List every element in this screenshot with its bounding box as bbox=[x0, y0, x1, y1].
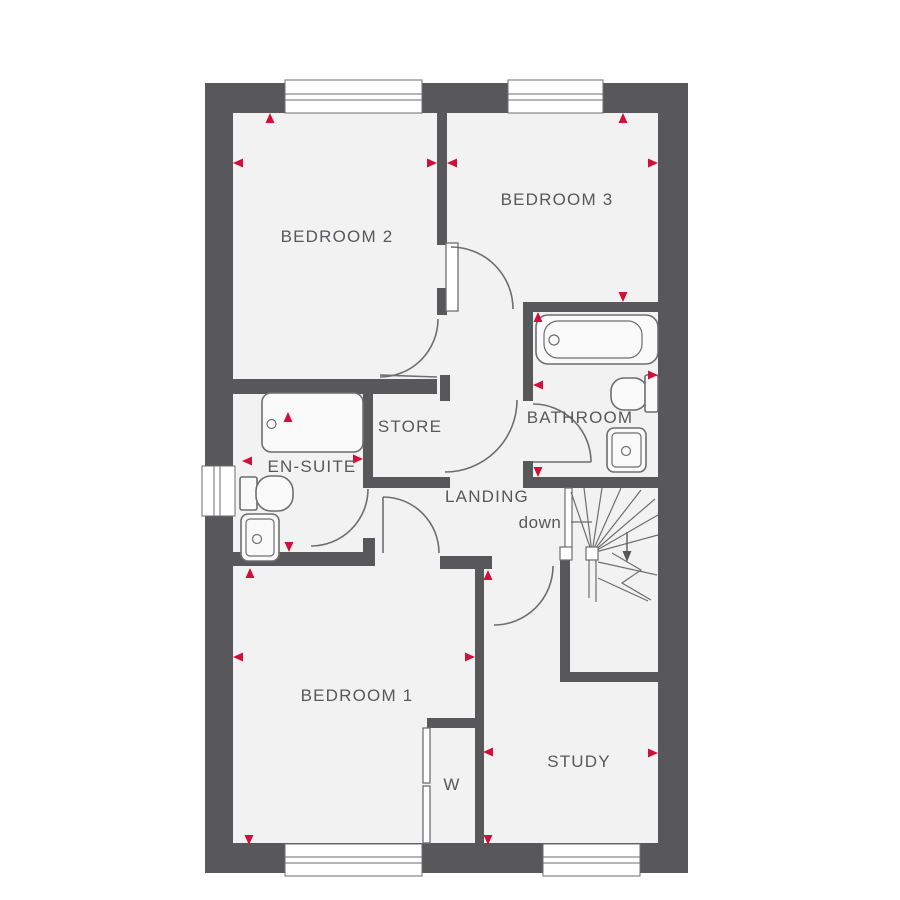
bath bbox=[536, 315, 658, 364]
room-label-ensuite: EN-SUITE bbox=[268, 457, 357, 477]
wall-segment bbox=[363, 393, 373, 488]
stairs-direction-label: down bbox=[519, 513, 562, 533]
door-leaf bbox=[446, 243, 458, 311]
wall-segment bbox=[427, 718, 475, 728]
wall-segment bbox=[233, 379, 437, 394]
shower-tray bbox=[262, 393, 363, 452]
room-label-bedroom1: BEDROOM 1 bbox=[301, 686, 414, 706]
room-label-bathroom: BATHROOM bbox=[527, 408, 634, 428]
wall-segment bbox=[560, 552, 570, 682]
room-label-bedroom3: BEDROOM 3 bbox=[501, 190, 614, 210]
window bbox=[543, 844, 640, 876]
wall-segment bbox=[523, 477, 658, 488]
wall-segment bbox=[523, 461, 533, 478]
stair-newel bbox=[586, 547, 598, 560]
wall-segment bbox=[363, 538, 375, 554]
toilet bbox=[240, 476, 293, 511]
room-label-study: STUDY bbox=[547, 752, 611, 772]
floor-plan: BEDROOM 2 BEDROOM 3 BATHROOM STORE EN-SU… bbox=[0, 0, 900, 900]
room-label-store: STORE bbox=[378, 417, 442, 437]
window bbox=[285, 844, 422, 876]
wall-segment bbox=[437, 113, 447, 245]
stair-newel bbox=[560, 547, 572, 560]
wall-segment bbox=[440, 375, 450, 401]
sink bbox=[241, 514, 279, 561]
wall-segment bbox=[523, 302, 658, 312]
wall-segment bbox=[205, 83, 688, 113]
wall-segment bbox=[658, 83, 688, 873]
window bbox=[202, 466, 235, 516]
stair-stringer bbox=[565, 488, 572, 548]
window bbox=[508, 80, 603, 113]
wall-segment bbox=[560, 672, 658, 682]
wall-segment bbox=[363, 477, 450, 488]
room-label-wardrobe: W bbox=[443, 775, 460, 795]
room-label-landing: LANDING bbox=[445, 487, 529, 507]
wardrobe-doors bbox=[423, 728, 430, 843]
window bbox=[285, 80, 422, 113]
wall-segment bbox=[523, 302, 533, 401]
toilet bbox=[611, 375, 658, 412]
room-label-bedroom2: BEDROOM 2 bbox=[281, 227, 394, 247]
wall-segment bbox=[440, 556, 492, 569]
wall-segment bbox=[475, 563, 484, 845]
sink bbox=[607, 428, 646, 472]
floor-plan-drawing bbox=[0, 0, 900, 900]
